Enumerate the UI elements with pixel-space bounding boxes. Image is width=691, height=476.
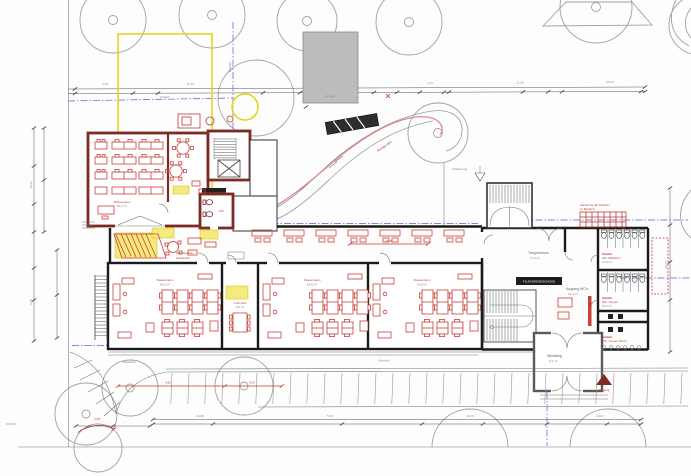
label-bar xyxy=(202,188,226,193)
main-stair xyxy=(484,290,536,342)
windfang: Windfang 9,2 m² Eingang xyxy=(534,331,612,399)
existing-building-label: Garage xyxy=(325,94,335,98)
wc-small-label: WC xyxy=(219,209,224,213)
lehrmittel-area: 8,6 m² xyxy=(236,305,245,309)
classroom-1-area: 66,5 m² xyxy=(160,283,170,287)
garderobe-label: Garderobe xyxy=(176,256,190,260)
dim-corridor-red: 27,45 xyxy=(385,239,393,243)
dim-left-1: 12,51 xyxy=(29,181,33,189)
classroom-upper-area: 60,2 m² xyxy=(117,204,127,208)
aufgang-label: Aufgang WC's xyxy=(566,287,589,291)
dim-top-4: 2,51 xyxy=(427,81,433,85)
floor-plan-canvas: 3,38 12,49 4,99 2,51 11,26 26,44 Zufahrt… xyxy=(0,0,691,476)
wc-p-label: WC, Jungen (Pers.) xyxy=(602,339,627,343)
dim-top-6: 26,44 xyxy=(606,80,614,84)
dim-right-1: 15,24 xyxy=(664,261,668,269)
section-marker xyxy=(325,114,378,135)
outdoor-stair-west xyxy=(95,275,107,340)
new-building-block: WC xyxy=(82,131,277,236)
stellplaetze-label: Stellplätze xyxy=(122,360,136,364)
dim-top-2: 12,49 xyxy=(186,82,194,86)
north-stair-annex: Anlieferung xyxy=(452,166,532,228)
wc-jungen: Sanitär WC, Jungen 16,2 m² xyxy=(601,272,645,308)
dim-bottom-3: 11,26 xyxy=(466,414,474,418)
windfang-area: 9,2 m² xyxy=(549,359,558,363)
classroom-3-label: Klassenraum xyxy=(414,278,431,282)
dim-bottom-4: 24,01 xyxy=(596,414,604,418)
left-dimension-chains: 12,51 9,38 xyxy=(29,126,59,342)
dim-left-2: 9,38 xyxy=(29,299,33,305)
classroom-2-area: 64,8 m² xyxy=(307,283,317,287)
classroom-2-label: Klassenraum xyxy=(304,278,321,282)
dim-top-1: 3,38 xyxy=(102,82,108,86)
zugang-label: Anlieferung xyxy=(452,167,468,171)
right-dimension-chain: 15,24 xyxy=(652,186,672,353)
treppenhaus-area: 17,6 m² xyxy=(530,256,540,260)
wc-personal: Sanitär WC, Jungen (Pers.) xyxy=(602,314,641,349)
rampe-label: Rampe 6% xyxy=(376,140,392,153)
classroom-1-label: Klassenraum xyxy=(157,278,174,282)
wartebereich-label: Wartebereich xyxy=(176,251,193,255)
wc-m-area: 16,8 m² xyxy=(602,260,612,264)
zufahrt-label: Zufahrt xyxy=(160,95,170,99)
foyer-zone: Wartebereich Garderobe xyxy=(110,228,218,263)
classroom-3-area: 64,8 m² xyxy=(417,283,427,287)
windfang-label: Windfang xyxy=(547,354,562,358)
dim-bottom-2: 5,00 xyxy=(327,414,333,418)
floor-plan-sheet: 3,38 12,49 4,99 2,51 11,26 26,44 Zufahrt… xyxy=(0,0,691,476)
existing-building: Garage xyxy=(303,32,358,109)
sanierung-label-2: im Bestand xyxy=(580,207,595,211)
corridor-sign-text: FLUR ERDGESCHOSS xyxy=(523,280,555,284)
wc-j-area: 16,2 m² xyxy=(602,304,612,308)
bottom-dimension-chain: 24,38 5,00 11,26 24,01 xyxy=(74,414,643,428)
dim-red-small: 4,50 xyxy=(94,417,100,421)
fence-red-mark xyxy=(386,94,390,98)
grenze-label: Grenze xyxy=(228,62,232,72)
dim-red-2: 9,00 xyxy=(249,381,255,385)
site-red-markers xyxy=(178,114,233,128)
classroom-band: Klassenraum 66,5 m² Klassenraum 64,8 m² … xyxy=(95,253,533,363)
dim-top-5: 11,26 xyxy=(516,81,524,85)
treppenhaus-label: Treppenhaus xyxy=(528,251,549,255)
sanierung-area: Sanierung der Toiletten im Bestand xyxy=(580,203,626,227)
aufgang-area: 23,4 m² xyxy=(568,292,578,296)
schulhof-label: Schulhof xyxy=(378,359,390,363)
hall-red-fixtures xyxy=(558,298,572,319)
dim-bottom-1: 24,38 xyxy=(196,414,204,418)
new-wall-red xyxy=(588,296,592,326)
eingang-label: Eingang xyxy=(599,388,610,392)
right-block: Anlieferung Sanierung der Toiletten im B… xyxy=(452,166,648,399)
dim-red-1: 4,50 xyxy=(165,381,171,385)
